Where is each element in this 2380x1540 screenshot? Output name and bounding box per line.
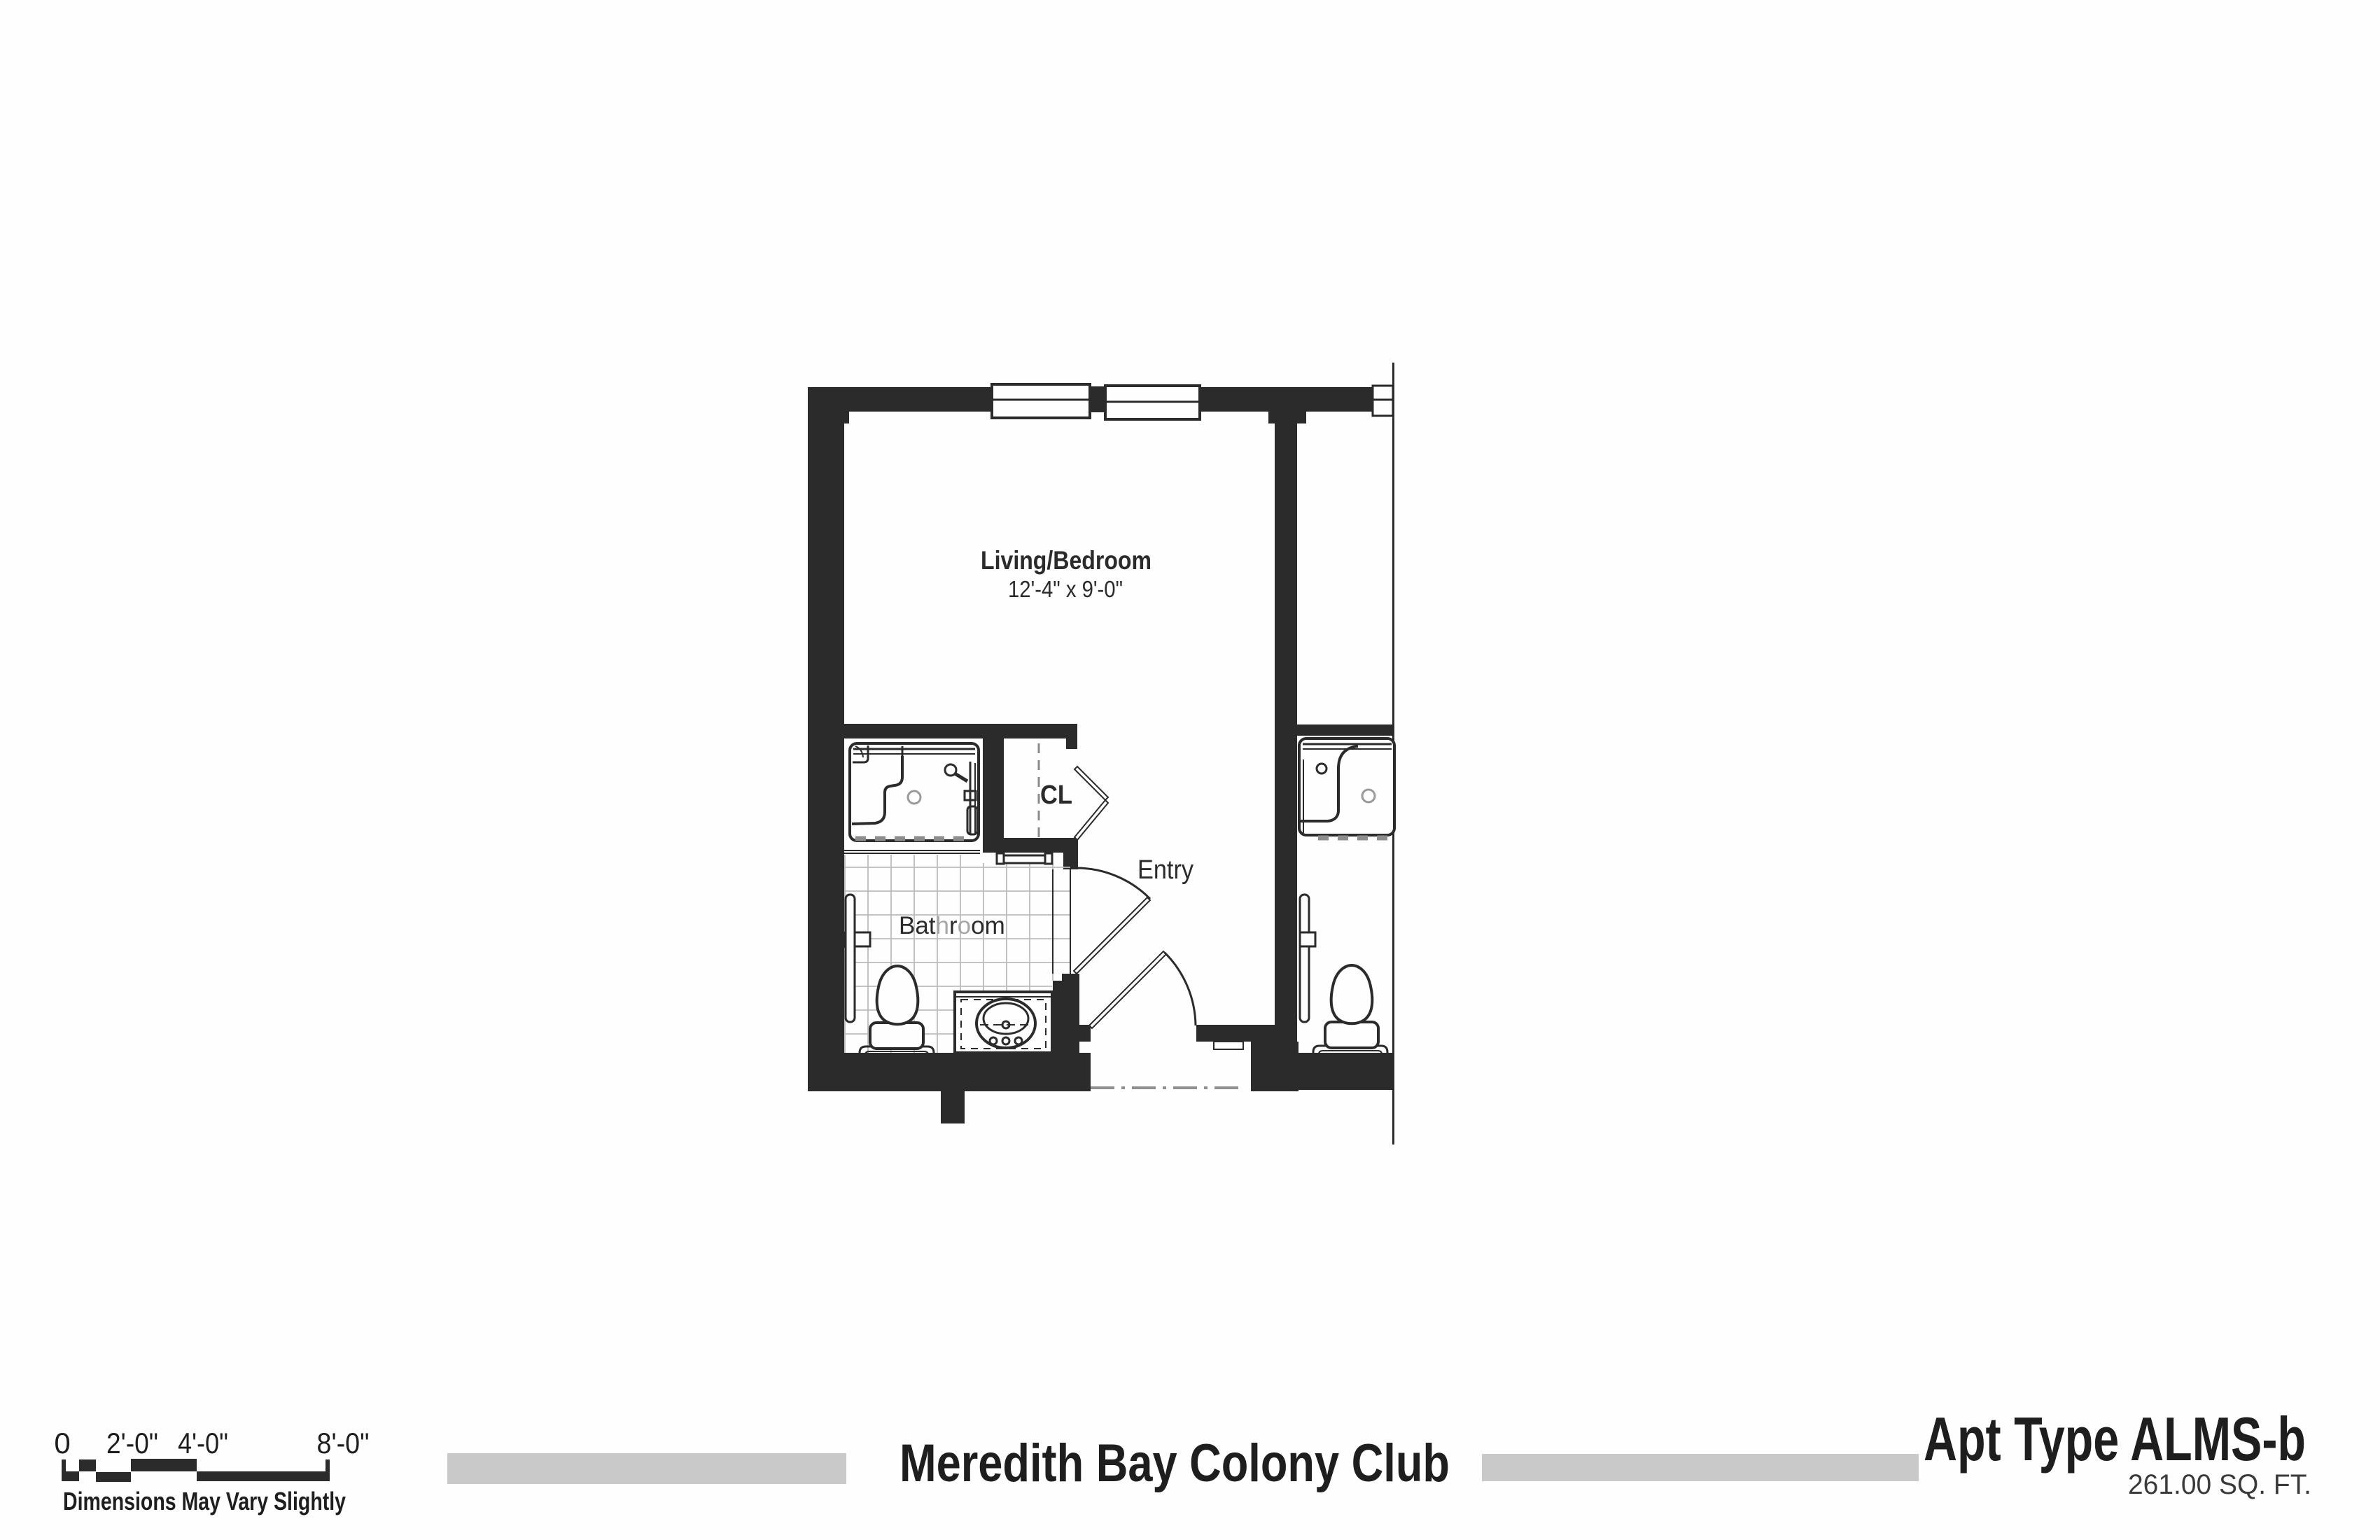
- svg-text:Living/Bedroom: Living/Bedroom: [981, 546, 1151, 575]
- svg-text:Apt Type ALMS-b: Apt Type ALMS-b: [1924, 1404, 2306, 1473]
- svg-text:Bathroom: Bathroom: [899, 912, 1005, 939]
- svg-text:4'-0": 4'-0": [178, 1427, 228, 1459]
- svg-text:12'-4" x 9'-0": 12'-4" x 9'-0": [1008, 576, 1123, 602]
- svg-text:CL: CL: [1040, 780, 1072, 810]
- svg-text:Meredith Bay Colony Club: Meredith Bay Colony Club: [899, 1434, 1450, 1493]
- svg-text:8'-0": 8'-0": [317, 1427, 370, 1459]
- svg-text:0: 0: [54, 1427, 70, 1459]
- svg-text:Dimensions May Vary Slightly: Dimensions May Vary Slightly: [63, 1487, 346, 1515]
- svg-text:2'-0": 2'-0": [106, 1427, 158, 1459]
- svg-text:261.00 SQ. FT.: 261.00 SQ. FT.: [2128, 1469, 2311, 1500]
- svg-text:Entry: Entry: [1137, 855, 1193, 885]
